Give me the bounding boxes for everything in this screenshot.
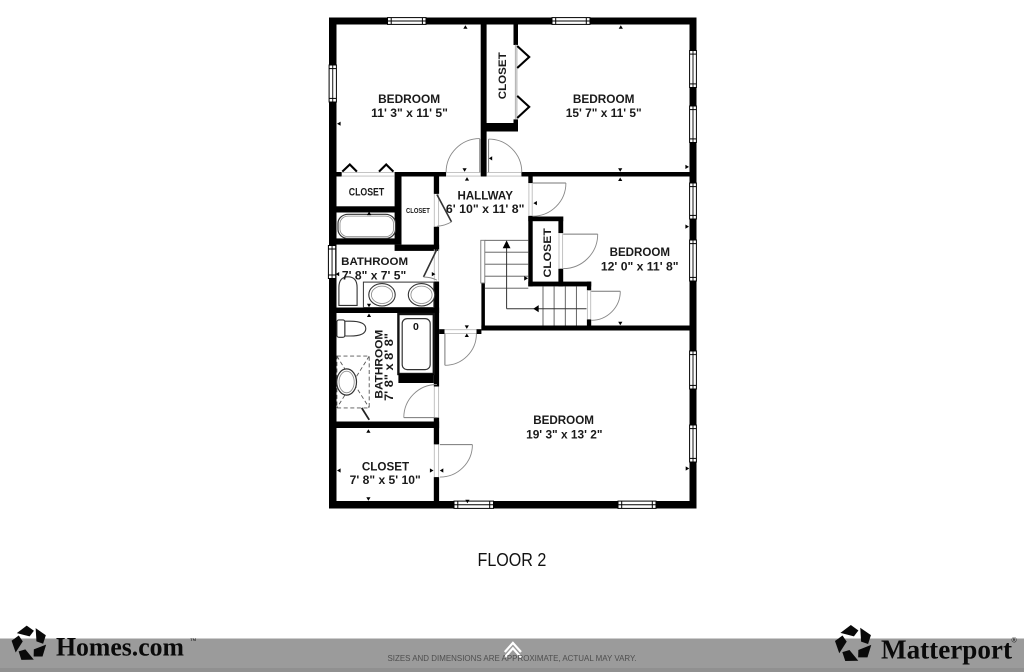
svg-text:19' 3" x 13' 2": 19' 3" x 13' 2": [526, 428, 602, 441]
svg-text:0: 0: [413, 321, 419, 333]
svg-text:CLOSET: CLOSET: [362, 460, 410, 474]
svg-text:Homes.com: Homes.com: [56, 632, 184, 662]
svg-text:BATHROOM: BATHROOM: [341, 256, 408, 268]
svg-text:11' 3" x 11' 5": 11' 3" x 11' 5": [371, 107, 448, 120]
svg-text:7' 8" x 8' 8": 7' 8" x 8' 8": [383, 333, 396, 401]
svg-text:7' 8" x 5' 10": 7' 8" x 5' 10": [350, 474, 421, 487]
svg-text:BEDROOM: BEDROOM: [533, 413, 594, 427]
svg-text:7' 8" x 7' 5": 7' 8" x 7' 5": [342, 269, 406, 282]
svg-text:BEDROOM: BEDROOM: [573, 92, 635, 106]
svg-text:12' 0" x 11' 8": 12' 0" x 11' 8": [601, 261, 679, 274]
svg-text:CLOSET: CLOSET: [497, 52, 509, 99]
svg-text:BEDROOM: BEDROOM: [610, 245, 670, 259]
svg-text:™: ™: [190, 638, 197, 645]
svg-text:HALLWAY: HALLWAY: [458, 189, 513, 203]
svg-text:SIZES AND DIMENSIONS ARE APPRO: SIZES AND DIMENSIONS ARE APPROXIMATE, AC…: [388, 654, 637, 663]
svg-text:15' 7" x 11' 5": 15' 7" x 11' 5": [566, 107, 642, 120]
svg-text:FLOOR 2: FLOOR 2: [478, 550, 547, 570]
svg-text:®: ®: [1012, 637, 1018, 645]
svg-text:CLOSET: CLOSET: [542, 228, 554, 277]
svg-text:Matterport: Matterport: [881, 634, 1012, 664]
svg-text:6' 10" x 11' 8": 6' 10" x 11' 8": [446, 203, 525, 216]
svg-text:BEDROOM: BEDROOM: [378, 92, 440, 106]
svg-text:CLOSET: CLOSET: [349, 187, 385, 199]
svg-text:CLOSET: CLOSET: [406, 208, 430, 215]
